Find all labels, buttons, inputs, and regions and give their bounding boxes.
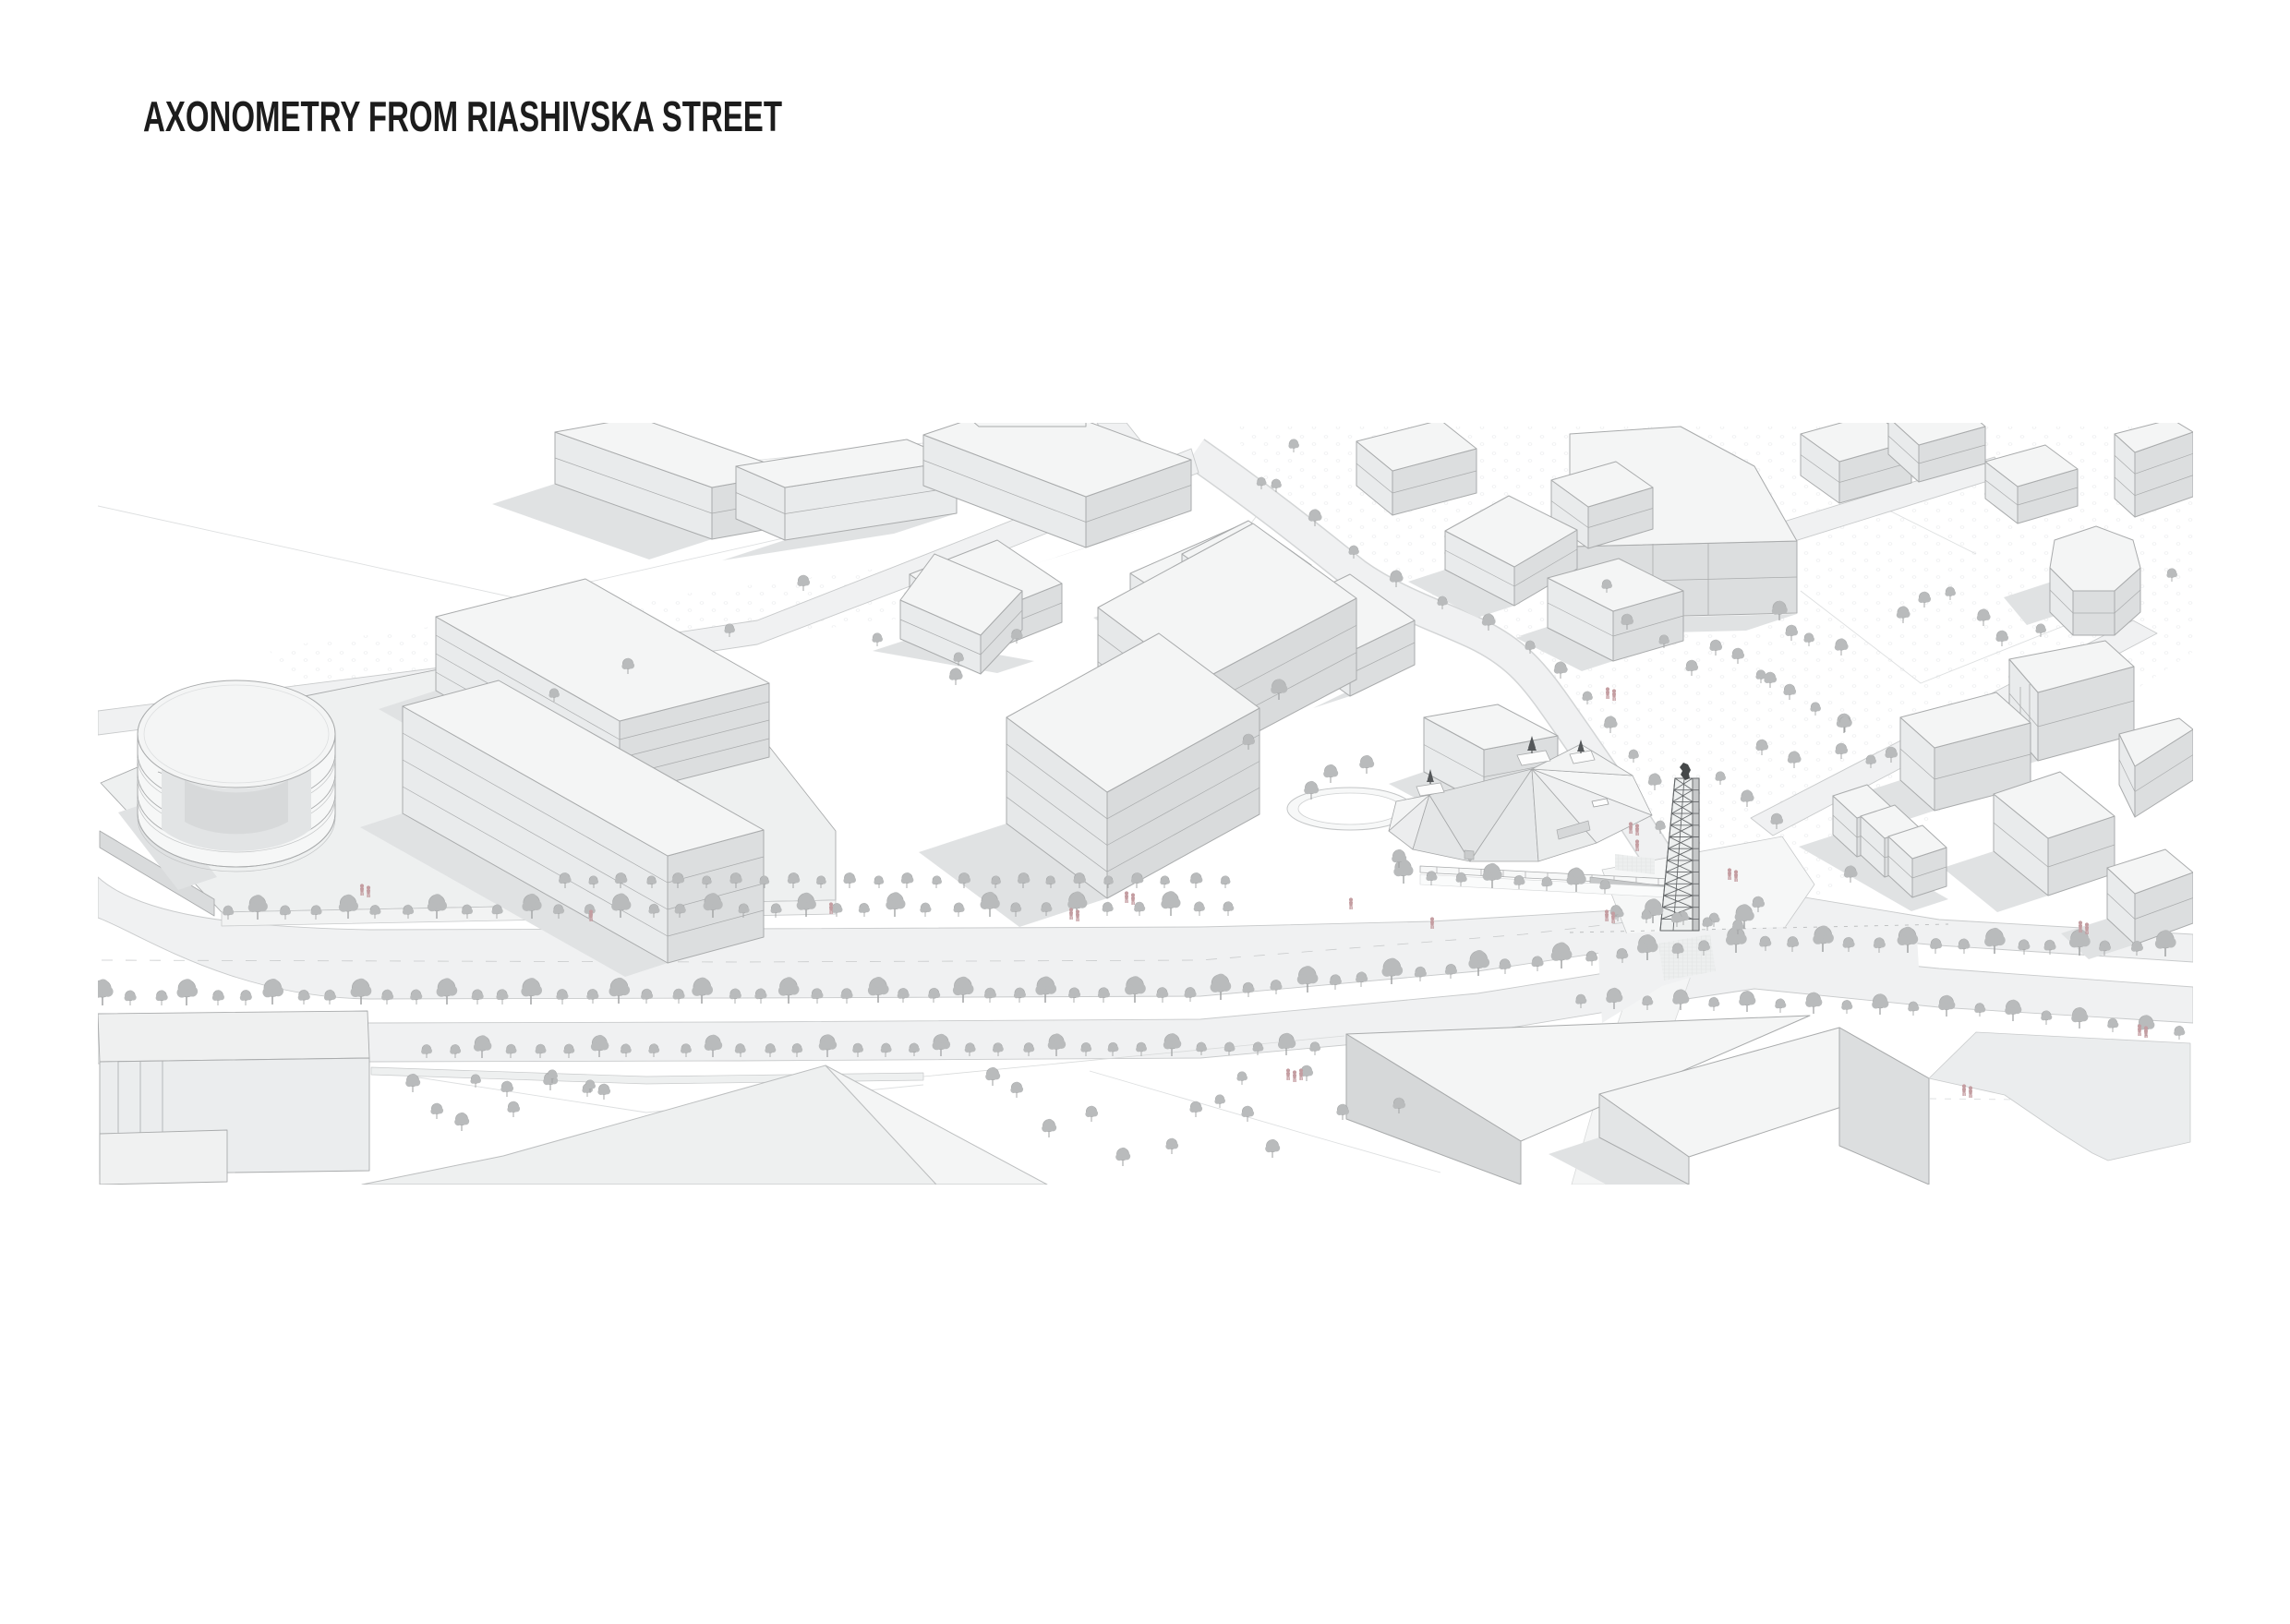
svg-text:AXONOMETRY FROM RIASHIVSKA STR: AXONOMETRY FROM RIASHIVSKA STREET: [143, 92, 782, 140]
